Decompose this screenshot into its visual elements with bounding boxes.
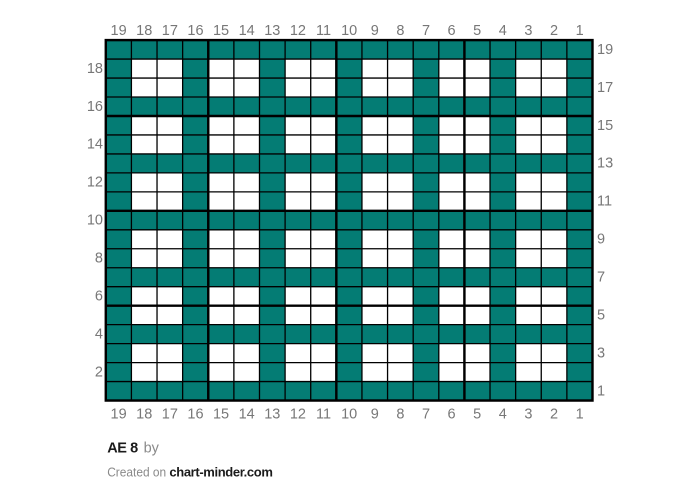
svg-text:1: 1	[576, 23, 584, 39]
svg-text:12: 12	[290, 406, 306, 422]
svg-text:5: 5	[473, 406, 481, 422]
svg-text:11: 11	[316, 23, 331, 39]
svg-text:8: 8	[396, 23, 404, 39]
svg-text:13: 13	[264, 23, 280, 39]
svg-text:5: 5	[473, 23, 481, 39]
svg-text:AE 8by: AE 8by	[107, 440, 159, 456]
svg-text:8: 8	[95, 251, 103, 267]
svg-text:2: 2	[95, 364, 103, 380]
svg-text:10: 10	[87, 213, 103, 229]
svg-text:14: 14	[239, 23, 255, 39]
svg-text:15: 15	[597, 118, 613, 134]
svg-text:14: 14	[239, 406, 255, 422]
svg-text:14: 14	[87, 137, 103, 153]
svg-text:6: 6	[95, 289, 103, 305]
svg-text:12: 12	[290, 23, 306, 39]
svg-text:10: 10	[341, 406, 357, 422]
svg-text:6: 6	[448, 406, 456, 422]
svg-text:19: 19	[111, 406, 127, 422]
svg-text:1: 1	[576, 406, 584, 422]
svg-text:12: 12	[87, 175, 103, 191]
svg-text:13: 13	[597, 156, 613, 172]
svg-text:9: 9	[371, 23, 379, 39]
svg-text:3: 3	[524, 23, 532, 39]
svg-text:6: 6	[448, 23, 456, 39]
svg-text:3: 3	[524, 406, 532, 422]
svg-text:16: 16	[187, 23, 203, 39]
svg-text:3: 3	[597, 345, 605, 361]
svg-text:11: 11	[316, 406, 331, 422]
svg-text:11: 11	[597, 194, 612, 210]
svg-text:18: 18	[136, 406, 152, 422]
svg-text:19: 19	[111, 23, 127, 39]
svg-text:7: 7	[422, 23, 430, 39]
svg-text:15: 15	[213, 23, 229, 39]
svg-text:10: 10	[341, 23, 357, 39]
svg-text:4: 4	[499, 406, 507, 422]
svg-text:4: 4	[499, 23, 507, 39]
svg-text:18: 18	[87, 61, 103, 77]
svg-text:19: 19	[597, 42, 613, 58]
svg-text:1: 1	[597, 383, 605, 399]
svg-text:4: 4	[95, 326, 103, 342]
svg-text:16: 16	[187, 406, 203, 422]
svg-text:7: 7	[597, 270, 605, 286]
svg-text:2: 2	[550, 23, 558, 39]
svg-text:13: 13	[264, 406, 280, 422]
svg-text:7: 7	[422, 406, 430, 422]
svg-text:15: 15	[213, 406, 229, 422]
svg-text:17: 17	[597, 80, 613, 96]
svg-text:2: 2	[550, 406, 558, 422]
svg-text:9: 9	[371, 406, 379, 422]
svg-text:16: 16	[87, 99, 103, 115]
svg-text:18: 18	[136, 23, 152, 39]
svg-text:17: 17	[162, 23, 178, 39]
svg-text:8: 8	[396, 406, 404, 422]
svg-text:17: 17	[162, 406, 178, 422]
svg-text:5: 5	[597, 307, 605, 323]
svg-text:Created onchart-minder.com: Created onchart-minder.com	[107, 464, 273, 479]
svg-text:9: 9	[597, 232, 605, 248]
